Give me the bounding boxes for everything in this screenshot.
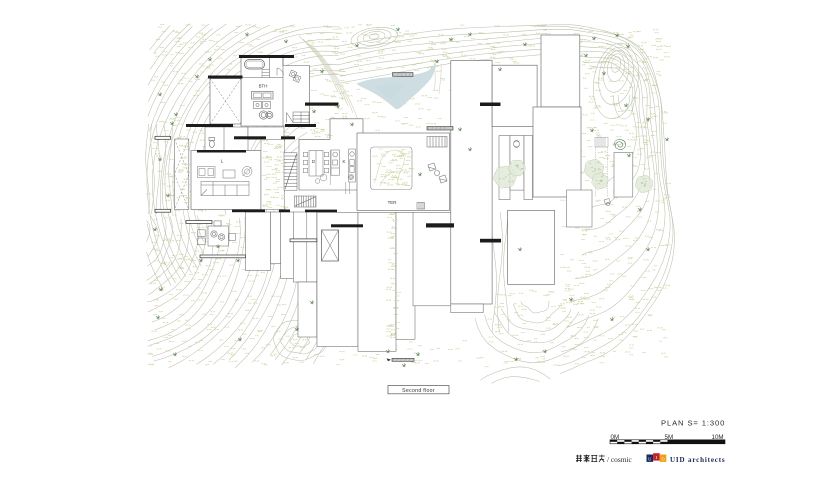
svg-text:Second floor: Second floor bbox=[402, 388, 435, 394]
svg-text:BTH: BTH bbox=[259, 84, 268, 89]
svg-text:PLAN S= 1:300: PLAN S= 1:300 bbox=[661, 419, 725, 428]
svg-text:/ cosmic: / cosmic bbox=[607, 455, 633, 464]
svg-text:D: D bbox=[312, 159, 315, 164]
svg-text:UID architects: UID architects bbox=[670, 456, 726, 464]
svg-text:TER: TER bbox=[388, 200, 397, 205]
svg-text:K: K bbox=[343, 159, 346, 164]
